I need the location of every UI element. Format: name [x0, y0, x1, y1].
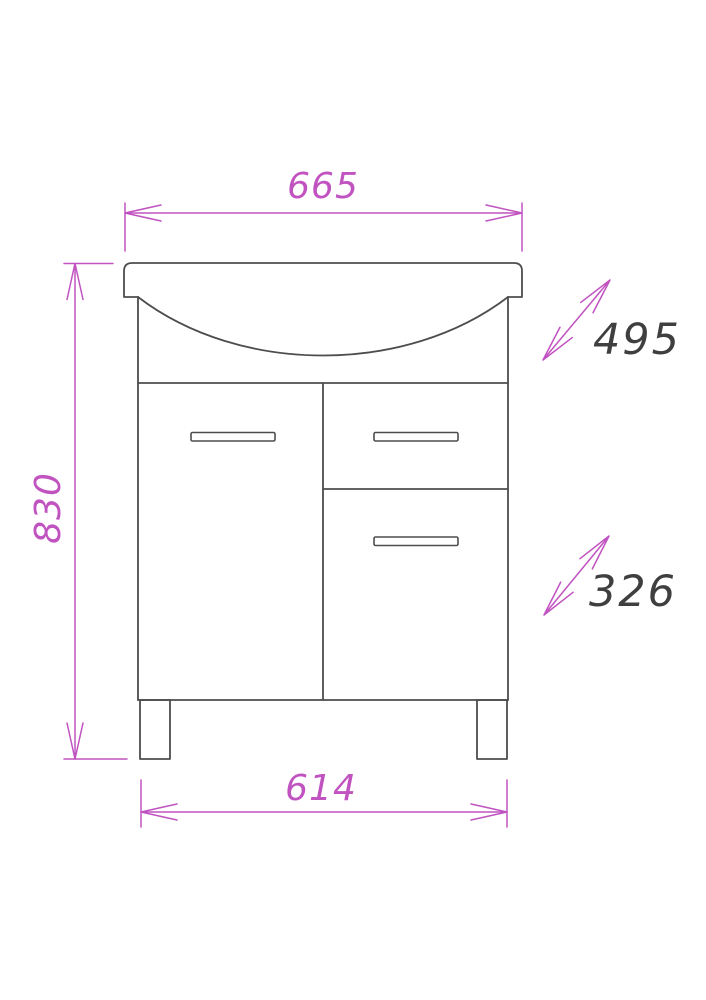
dim-label-height: 830 — [28, 472, 69, 544]
sink-basin-curve — [138, 297, 508, 356]
upper-drawer-handle — [374, 433, 458, 442]
technical-drawing-canvas: 665 830 614 495 326 — [0, 0, 706, 1000]
dim-label-top-width: 665 — [287, 166, 359, 207]
dim-bottom-width: 614 — [141, 768, 507, 827]
lower-door-handle — [374, 537, 458, 546]
left-leg — [140, 700, 170, 759]
dim-label-lower-depth: 326 — [589, 567, 677, 617]
dim-lower-depth: 326 — [544, 536, 677, 617]
vanity-cabinet — [124, 263, 522, 759]
dim-label-upper-depth: 495 — [593, 315, 681, 365]
dim-height: 830 — [28, 264, 127, 760]
right-leg — [477, 700, 507, 759]
dim-label-bottom-width: 614 — [285, 768, 357, 809]
left-door-handle — [191, 433, 275, 442]
dim-top-width: 665 — [125, 166, 522, 251]
vanity-dimension-diagram: 665 830 614 495 326 — [0, 0, 706, 1000]
dim-upper-depth: 495 — [543, 280, 681, 365]
sink-countertop — [124, 263, 522, 297]
